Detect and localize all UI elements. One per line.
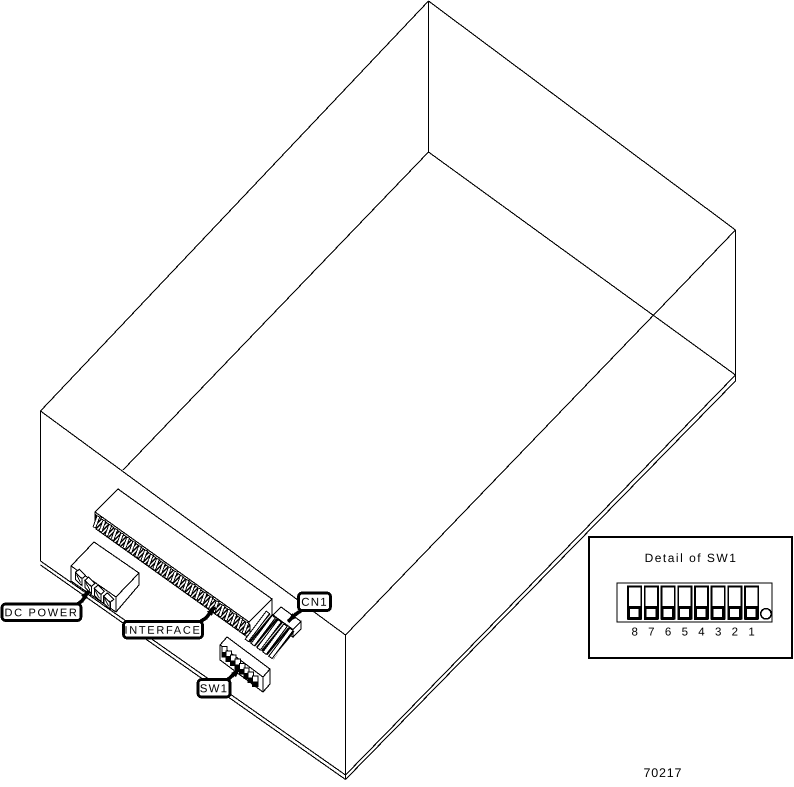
svg-text:Detail of SW1: Detail of SW1 (645, 551, 738, 565)
svg-text:7: 7 (648, 626, 654, 638)
svg-text:1: 1 (748, 626, 754, 638)
svg-text:8: 8 (631, 626, 637, 638)
svg-text:DC POWER: DC POWER (4, 607, 78, 619)
svg-text:5: 5 (682, 626, 688, 638)
svg-text:SW1: SW1 (200, 683, 229, 695)
svg-text:6: 6 (665, 626, 671, 638)
svg-text:CN1: CN1 (301, 597, 328, 609)
svg-text:3: 3 (715, 626, 721, 638)
svg-text:4: 4 (698, 626, 705, 638)
svg-text:2: 2 (732, 626, 738, 638)
svg-text:70217: 70217 (643, 766, 682, 780)
svg-text:INTERFACE: INTERFACE (124, 625, 201, 637)
